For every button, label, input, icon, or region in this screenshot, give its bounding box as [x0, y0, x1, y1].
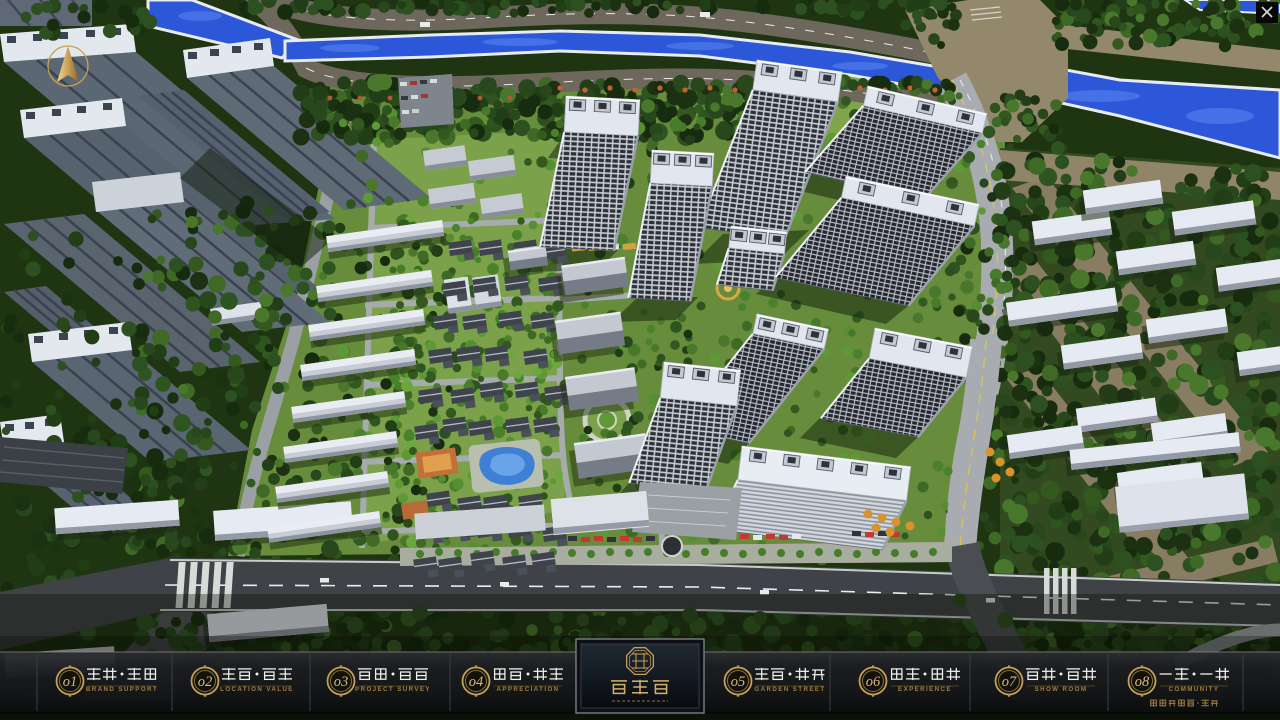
svg-text:SHOW ROOM: SHOW ROOM: [1035, 686, 1088, 693]
svg-text:APPRECIATION: APPRECIATION: [496, 686, 559, 693]
svg-text:LOCATION VALUE: LOCATION VALUE: [220, 686, 294, 693]
svg-text:GARDEN STREET: GARDEN STREET: [754, 686, 825, 693]
svg-text:o5: o5: [731, 674, 746, 690]
svg-text:o2: o2: [198, 674, 213, 690]
svg-text:o3: o3: [334, 674, 349, 690]
svg-text:PROJECT SURVEY: PROJECT SURVEY: [355, 686, 431, 693]
svg-text:o7: o7: [1002, 674, 1017, 690]
svg-text:COMMUNITY: COMMUNITY: [1169, 686, 1220, 693]
svg-text:BRAND SUPPORT: BRAND SUPPORT: [86, 686, 158, 693]
svg-text:o6: o6: [866, 674, 881, 690]
svg-text:o8: o8: [1135, 674, 1150, 690]
svg-text:o4: o4: [469, 674, 484, 690]
svg-text:o1: o1: [63, 674, 78, 690]
svg-text:EXPERIENCE: EXPERIENCE: [898, 686, 952, 693]
